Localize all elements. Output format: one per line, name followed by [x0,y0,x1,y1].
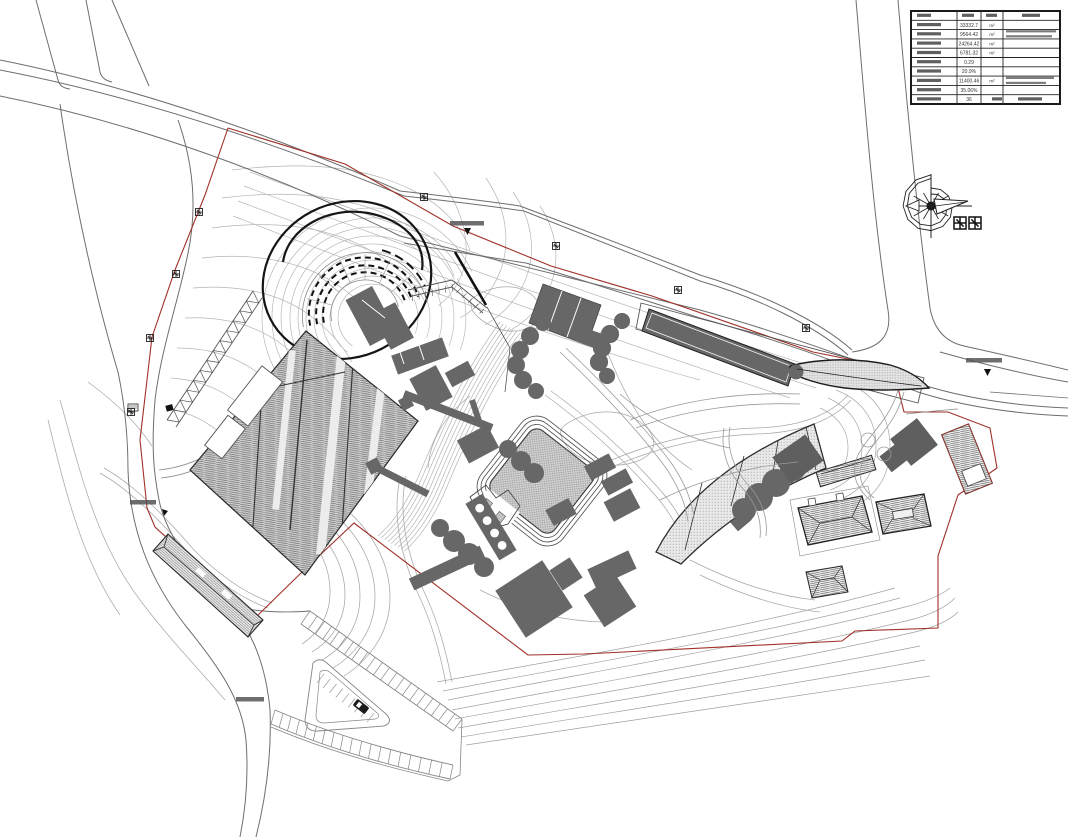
svg-text:m²: m² [989,41,995,46]
svg-text:24264.42: 24264.42 [959,41,980,47]
svg-text:35.06%: 35.06% [961,88,979,94]
svg-text:m²: m² [989,51,995,56]
svg-text:m²: m² [989,23,995,28]
svg-text:33332.7: 33332.7 [960,23,978,29]
svg-text:m²: m² [989,32,995,37]
svg-text:0.29: 0.29 [964,60,974,66]
svg-text:36: 36 [966,97,972,103]
svg-text:m²: m² [989,79,995,84]
svg-text:6781.32: 6781.32 [960,51,978,57]
svg-text:20.9%: 20.9% [962,69,977,75]
svg-text:9564.42: 9564.42 [960,32,978,38]
svg-text:11400.46: 11400.46 [959,79,980,85]
